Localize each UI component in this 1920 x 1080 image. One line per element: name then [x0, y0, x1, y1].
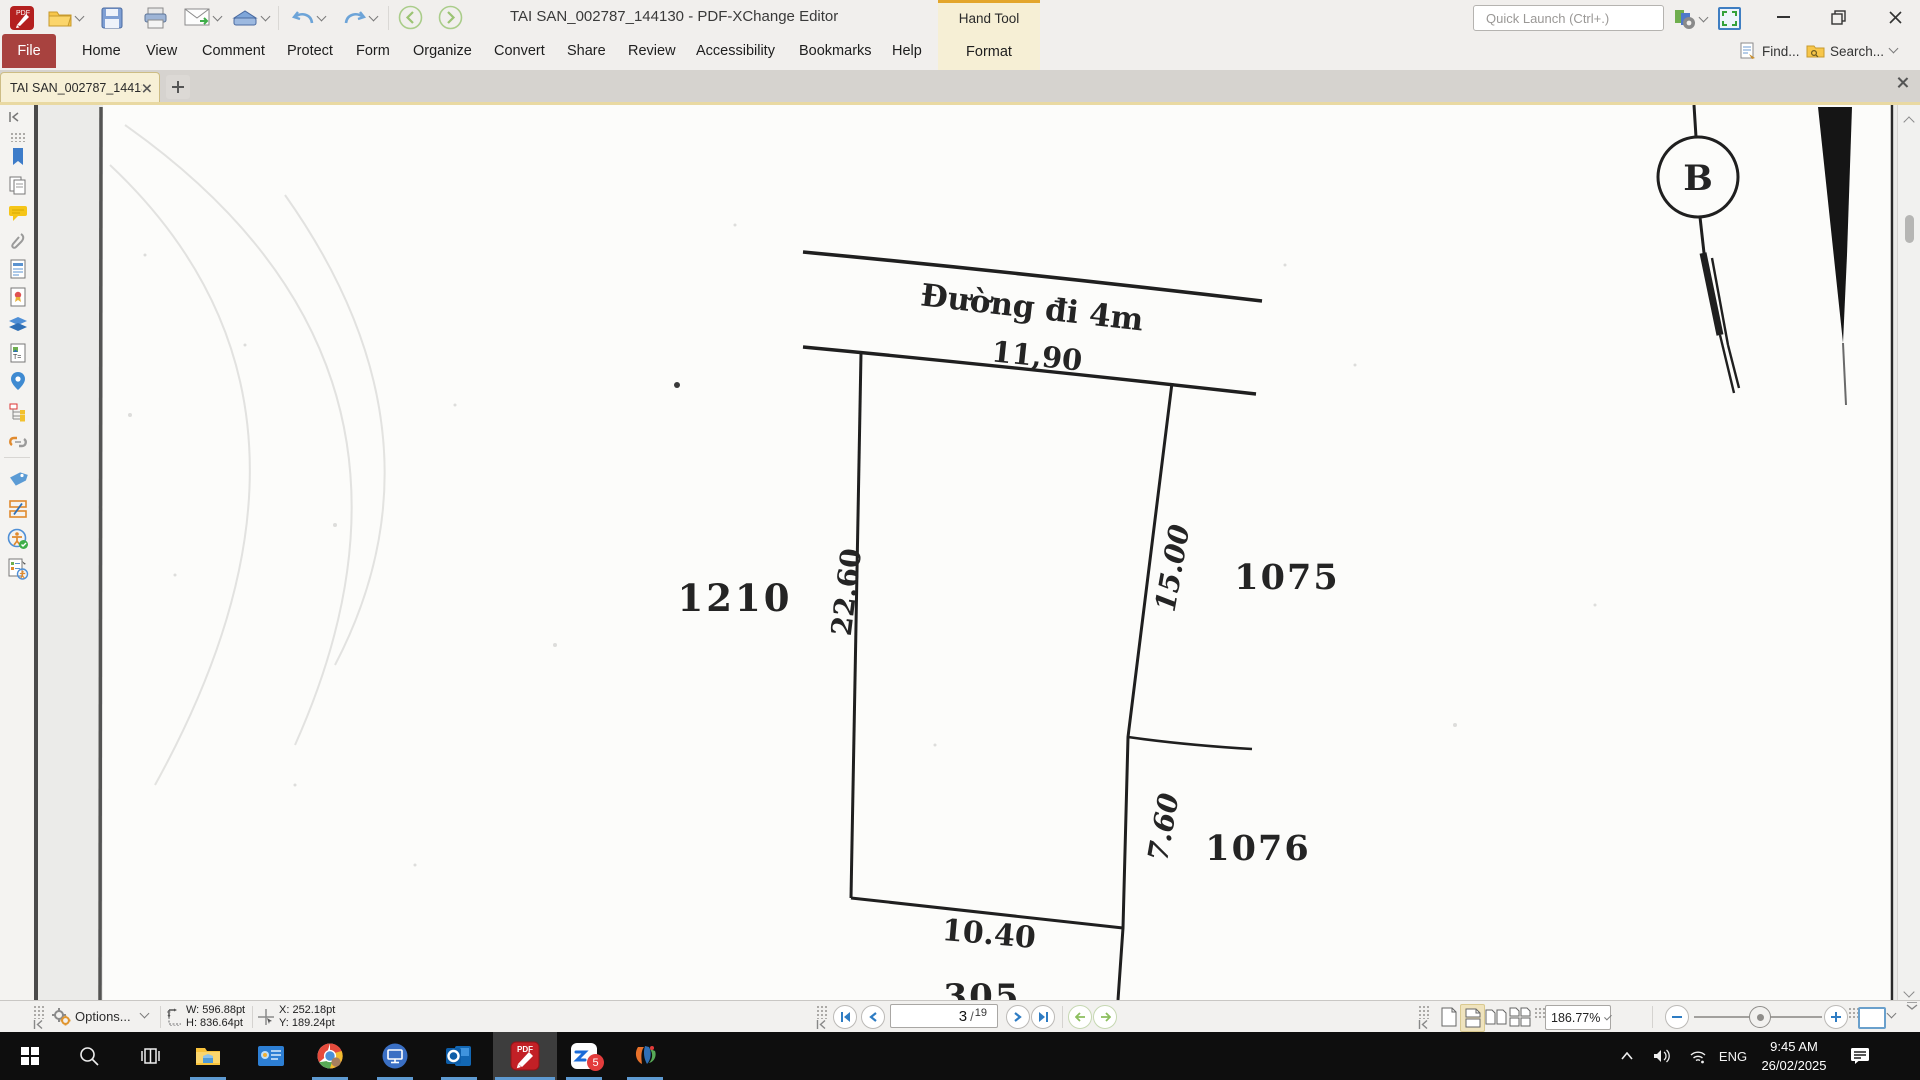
scrollbar-thumb[interactable] [1905, 215, 1914, 243]
panes-sidebar: T= [0, 105, 34, 1000]
chevron-down-icon [212, 11, 222, 21]
menu-item-accessibility[interactable]: Accessibility [694, 36, 777, 66]
parcel-number-right-lower: 1076 [1205, 828, 1310, 869]
scroll-up-button[interactable] [1905, 113, 1913, 131]
menu-item-view[interactable]: View [144, 36, 179, 66]
menu-item-protect[interactable]: Protect [285, 36, 335, 66]
menu-item-file[interactable]: File [2, 34, 56, 68]
chevron-down-icon[interactable] [140, 1009, 150, 1019]
first-page-button[interactable] [833, 1005, 857, 1029]
menu-item-help[interactable]: Help [890, 36, 924, 66]
hand-tool-ribbon-tab[interactable]: Hand Tool Format [938, 0, 1040, 70]
accessibility-report-pane-icon[interactable] [5, 557, 31, 581]
search-label: Search... [1830, 44, 1884, 59]
structure-pane-icon[interactable] [5, 400, 31, 424]
find-icon [1740, 42, 1757, 60]
zoom-level-dropdown[interactable]: 186.77% [1545, 1005, 1611, 1030]
chevron-down-icon[interactable] [1887, 1009, 1897, 1019]
undo-button[interactable] [286, 4, 330, 31]
destinations-pane-icon[interactable] [5, 369, 31, 393]
collapse-left-icon[interactable] [33, 1020, 44, 1029]
clock-date: 26/02/2025 [1752, 1056, 1836, 1075]
taskbar-remote-app[interactable] [372, 1032, 418, 1080]
quick-launch-box[interactable] [1473, 5, 1664, 31]
search-button[interactable]: Search... [1806, 38, 1884, 64]
full-screen-button[interactable] [1714, 5, 1744, 32]
file-explorer-icon [195, 1045, 221, 1067]
parcel-number-right-upper: 1075 [1234, 557, 1339, 598]
toolbar-separator [278, 6, 279, 30]
scanner-button[interactable] [228, 4, 272, 31]
open-file-button[interactable] [45, 4, 85, 31]
restore-icon [1831, 10, 1846, 25]
restore-button[interactable] [1815, 0, 1861, 34]
vertical-scrollbar[interactable] [1897, 105, 1920, 1000]
tab-close-icon[interactable] [143, 84, 150, 92]
sidebar-separator [4, 457, 30, 458]
taskbar-photos-app[interactable] [248, 1032, 294, 1080]
minimize-button[interactable] [1760, 0, 1806, 34]
tags-pane-icon[interactable] [5, 467, 31, 491]
options-button[interactable]: Options... [75, 1009, 131, 1024]
fields-pane-icon[interactable] [5, 257, 31, 281]
previous-page-button[interactable] [861, 1005, 885, 1029]
collapse-nav-icon[interactable] [816, 1020, 827, 1029]
app-logo-pdf-icon: PDF [8, 4, 36, 31]
start-button[interactable] [7, 1032, 53, 1080]
search-icon [79, 1046, 99, 1066]
menu-item-review[interactable]: Review [626, 36, 678, 66]
page-total: 19 [975, 1007, 987, 1019]
chevron-down-icon [317, 11, 327, 21]
wifi-icon [1689, 1049, 1707, 1064]
parcel-number-bottom: 305 [944, 977, 1021, 1000]
new-tab-button[interactable] [166, 75, 190, 99]
chevron-up-icon [1621, 1052, 1633, 1060]
document-area: T= [0, 105, 1920, 1000]
clock-time: 9:45 AM [1752, 1037, 1836, 1056]
zoom-slider-thumb[interactable] [1749, 1006, 1771, 1028]
email-button[interactable] [180, 4, 224, 31]
order-pane-icon[interactable] [5, 497, 31, 521]
page-current: 3 [959, 1008, 967, 1025]
window-title: TAI SAN_002787_144130 - PDF-XChange Edit… [510, 8, 838, 25]
zoom-out-button[interactable] [1665, 1005, 1689, 1029]
document-tab-title: TAI SAN_002787_144130 [10, 81, 142, 95]
windows-taskbar: PDF 5 [0, 1032, 1920, 1080]
find-button[interactable]: Find... [1740, 38, 1800, 64]
page-separator: / [970, 1009, 974, 1024]
pdf-xchange-icon: PDF [510, 1041, 540, 1071]
minimize-icon [1777, 16, 1790, 18]
links-pane-icon[interactable] [5, 430, 31, 454]
attachments-pane-icon[interactable] [5, 229, 31, 253]
page-width-readout: W: 596.88pt [186, 1004, 245, 1017]
hand-tool-label: Hand Tool [938, 11, 1040, 26]
content-pane-icon[interactable]: T= [5, 341, 31, 365]
print-button[interactable] [140, 4, 170, 31]
menu-item-home[interactable]: Home [80, 36, 123, 66]
status-bar: Options... W: 596.88pt H: 836.64pt X: 25… [0, 1000, 1920, 1032]
thumbnails-pane-icon[interactable] [5, 173, 31, 197]
taskbar-pdf-xchange[interactable]: PDF [502, 1032, 548, 1080]
notification-icon [1850, 1047, 1870, 1065]
stray-dot [674, 382, 680, 388]
save-button[interactable] [98, 4, 126, 31]
gear-icon [52, 1008, 71, 1026]
taskbar-search-button[interactable] [66, 1032, 112, 1080]
document-tab-bar: TAI SAN_002787_144130 [0, 70, 1920, 105]
chevron-down-icon [1699, 12, 1709, 22]
language-indicator: ENG [1719, 1049, 1747, 1064]
taskbar-zalo[interactable]: 5 [561, 1032, 607, 1080]
chrome-icon [317, 1043, 343, 1069]
taskbar-outlook[interactable] [436, 1032, 482, 1080]
next-view-button[interactable] [436, 4, 464, 31]
quick-launch-input[interactable] [1484, 10, 1664, 27]
two-page-layout-button[interactable] [1484, 1004, 1507, 1030]
previous-view-button[interactable] [396, 4, 424, 31]
page-size-icon [166, 1008, 183, 1026]
chevron-down-icon [260, 11, 270, 21]
menu-item-share[interactable]: Share [565, 36, 608, 66]
statusbar-handle[interactable] [33, 1005, 45, 1019]
windows-logo-icon [21, 1047, 39, 1065]
zoom-value: 186.77% [1551, 1011, 1600, 1025]
cursor-x-readout: X: 252.18pt [279, 1004, 335, 1017]
photos-app-icon [258, 1046, 284, 1066]
search-folder-icon [1806, 43, 1825, 59]
tray-expand-button[interactable] [1612, 1032, 1642, 1080]
previous-view-status-button[interactable] [1068, 1005, 1092, 1029]
chevron-down-icon[interactable] [1889, 44, 1899, 54]
menu-item-organize[interactable]: Organize [411, 36, 474, 66]
parcel-number-left: 1210 [678, 576, 793, 620]
title-bar: PDF [0, 0, 1920, 70]
chevron-down-icon [1604, 1012, 1612, 1020]
chevron-down-icon [74, 11, 84, 21]
menu-item-comment[interactable]: Comment [200, 36, 267, 66]
zoom-handle[interactable] [1418, 1005, 1430, 1019]
zoom-in-button[interactable] [1824, 1005, 1848, 1029]
accessibility-check-pane-icon[interactable] [5, 527, 31, 551]
marker-b-label: B [1683, 158, 1713, 199]
colorful-app-icon [632, 1043, 658, 1069]
redo-button[interactable] [338, 4, 382, 31]
remote-desktop-icon [382, 1043, 408, 1069]
page-number-box[interactable]: 3 / 19 [890, 1004, 998, 1028]
menu-item-convert[interactable]: Convert [492, 36, 547, 66]
action-center-button[interactable] [1840, 1032, 1880, 1080]
layers-pane-icon[interactable] [5, 313, 31, 337]
taskbar-clock[interactable]: 9:45 AM 26/02/2025 [1752, 1037, 1836, 1075]
next-page-button[interactable] [1006, 1005, 1030, 1029]
plus-icon [172, 81, 184, 93]
pdf-icon-label: PDF [517, 1045, 533, 1054]
chevron-down-icon [369, 11, 379, 21]
cursor-y-readout: Y: 189.24pt [279, 1017, 335, 1030]
speaker-icon [1653, 1048, 1671, 1064]
pdf-xchange-window: PDF [0, 0, 1920, 1080]
single-page-layout-button[interactable] [1437, 1004, 1460, 1030]
scroll-down-button[interactable] [1905, 983, 1913, 1001]
page-height-readout: H: 836.64pt [186, 1017, 243, 1030]
close-button[interactable] [1872, 0, 1918, 34]
svg-text:T=: T= [13, 354, 21, 361]
continuous-layout-button[interactable] [1460, 1004, 1485, 1032]
bookmarks-pane-icon[interactable] [5, 145, 31, 169]
document-tab[interactable]: TAI SAN_002787_144130 [0, 72, 160, 102]
last-page-button[interactable] [1031, 1005, 1055, 1029]
menu-item-bookmarks[interactable]: Bookmarks [797, 36, 874, 66]
tray-network[interactable] [1682, 1032, 1714, 1080]
menu-item-format[interactable]: Format [938, 44, 1040, 60]
nav-handle[interactable] [816, 1005, 828, 1019]
cursor-position-icon [257, 1008, 275, 1026]
next-view-status-button[interactable] [1093, 1005, 1117, 1029]
toolbar-separator [388, 6, 389, 30]
task-view-icon [140, 1047, 161, 1065]
taskbar-file-explorer[interactable] [185, 1032, 231, 1080]
close-icon [1888, 10, 1903, 25]
taskbar-misa-app[interactable] [622, 1032, 668, 1080]
task-view-button[interactable] [127, 1032, 173, 1080]
ui-theme-button[interactable] [1670, 5, 1710, 32]
collapse-zoom-icon[interactable] [1418, 1020, 1429, 1029]
comments-pane-icon[interactable] [5, 201, 31, 225]
outlook-icon [446, 1044, 472, 1068]
fit-page-button[interactable] [1858, 1007, 1886, 1029]
menu-item-form[interactable]: Form [354, 36, 392, 66]
statusbar-overflow-icon[interactable] [1906, 1002, 1918, 1012]
pdf-page-canvas[interactable]: Đường đi 4m 11,90 22.60 1210 15.00 1075 … [35, 105, 1920, 1000]
tray-volume[interactable] [1646, 1032, 1678, 1080]
page-sheet [103, 105, 1894, 1000]
zalo-notification-badge: 5 [587, 1054, 604, 1071]
find-label: Find... [1762, 44, 1800, 59]
two-page-continuous-layout-button[interactable] [1508, 1004, 1531, 1030]
taskbar-chrome[interactable] [307, 1032, 353, 1080]
tray-language[interactable]: ENG [1714, 1032, 1752, 1080]
signatures-pane-icon[interactable] [5, 285, 31, 309]
